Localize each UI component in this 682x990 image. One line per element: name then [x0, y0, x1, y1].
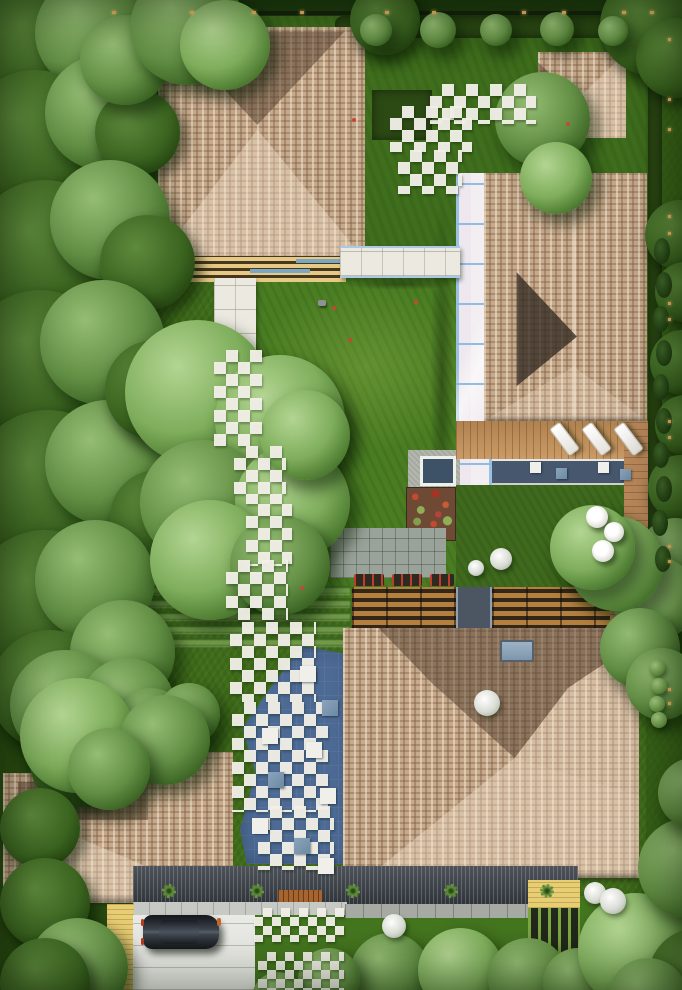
small-pool — [420, 456, 456, 486]
white-shrub — [490, 548, 512, 570]
fence-light — [650, 11, 654, 14]
conifer-hedge-tree — [653, 306, 669, 332]
car-headlight — [217, 918, 221, 926]
car — [141, 912, 221, 952]
flower-planter — [430, 574, 454, 586]
fence-light — [190, 11, 194, 14]
terrace-tile — [322, 700, 338, 716]
fence-light — [622, 11, 626, 14]
conifer-hedge-tree — [656, 272, 672, 298]
paver-checkerboard — [230, 622, 316, 702]
patio-umbrella — [604, 522, 624, 542]
conifer-hedge-tree — [652, 510, 668, 536]
white-shrub — [382, 914, 406, 938]
fence-light — [668, 688, 671, 691]
fence-light — [432, 11, 436, 14]
paver-checkerboard — [246, 504, 292, 566]
house-b-ridge — [574, 173, 576, 421]
paver-checkerboard — [234, 446, 286, 504]
pool-pad — [598, 462, 609, 473]
flower-planter — [354, 574, 384, 586]
palm-plant — [162, 884, 176, 898]
lawn-paver-checkerboard — [258, 952, 344, 990]
conifer-hedge-tree — [654, 238, 670, 264]
terrace-tile — [268, 772, 284, 788]
terrace-tile — [320, 788, 336, 804]
tree — [540, 12, 574, 46]
conifer-hedge-tree — [656, 340, 672, 366]
pool-pad — [620, 469, 631, 480]
house-d-roof — [343, 628, 639, 878]
fence-light — [668, 420, 671, 423]
terrace-tile — [318, 858, 334, 874]
tree — [68, 728, 150, 810]
tree — [520, 142, 592, 214]
fence-light — [668, 215, 671, 218]
house-d-south-slope — [343, 628, 639, 878]
fence-light — [668, 128, 671, 131]
patio-umbrella — [592, 540, 614, 562]
tree — [0, 788, 80, 868]
car-taillight-2 — [141, 938, 144, 945]
fence-light — [668, 545, 671, 548]
terrace-tile — [306, 742, 322, 758]
trimmed-bush — [651, 712, 667, 728]
palm-plant — [444, 884, 458, 898]
conifer-hedge-tree — [653, 442, 669, 468]
red-flower — [566, 122, 570, 126]
red-flower — [332, 306, 336, 310]
terrace-tile — [300, 666, 316, 682]
conifer-hedge-tree — [653, 374, 669, 400]
terrace-tile — [262, 728, 278, 744]
fence-light — [252, 11, 256, 14]
car-roof-glass — [159, 920, 199, 944]
house-d-skylight — [500, 640, 534, 662]
house-d-east-slope — [343, 628, 639, 878]
walkway-branch-west — [340, 246, 460, 278]
robot-mower — [318, 300, 326, 306]
red-flower — [352, 118, 356, 122]
white-shrub — [474, 690, 500, 716]
terrace-tile — [252, 818, 268, 834]
fence-light — [668, 98, 671, 101]
fence-light — [385, 11, 389, 14]
entry-walk-east — [345, 904, 531, 918]
trimmed-bush — [649, 660, 665, 676]
red-flower — [414, 300, 418, 304]
pergola-blue-beam-2 — [250, 269, 310, 273]
fence-light — [668, 560, 671, 563]
house-d-north-slope — [343, 628, 639, 878]
tree — [360, 14, 392, 46]
fence-light — [562, 11, 566, 14]
paver-checkerboard — [226, 560, 288, 620]
lawn-paver-checkerboard — [254, 908, 344, 942]
fence-light — [668, 318, 671, 321]
fence-light — [668, 702, 671, 705]
red-flower — [300, 586, 304, 590]
paver-checkerboard — [390, 106, 472, 152]
car-taillight — [141, 919, 144, 926]
fence-light — [668, 38, 671, 41]
aerial-garden-render — [0, 0, 682, 990]
white-shrub — [468, 560, 484, 576]
fence-light — [668, 232, 671, 235]
tree — [480, 14, 512, 46]
trimmed-bush — [651, 678, 667, 694]
fence-light — [522, 11, 526, 14]
fence-light — [112, 11, 116, 14]
gray-stone-patio — [330, 528, 446, 578]
tree — [598, 16, 628, 46]
fence-light — [668, 302, 671, 305]
palm-plant — [540, 884, 554, 898]
conifer-hedge-tree — [655, 546, 671, 572]
pool-pad — [530, 462, 541, 473]
paver-checkerboard — [398, 150, 462, 194]
white-shrub — [600, 888, 626, 914]
flower-planter — [392, 574, 422, 586]
conifer-hedge-tree — [656, 476, 672, 502]
trimmed-bush — [649, 696, 665, 712]
patio-umbrella — [586, 506, 608, 528]
yellow-deck-north — [528, 880, 580, 908]
fence-light — [668, 436, 671, 439]
terrace-tile — [294, 838, 310, 854]
palm-plant — [250, 884, 264, 898]
tree — [420, 12, 456, 48]
pergola-blue-beam — [296, 259, 342, 263]
red-flower — [348, 338, 352, 342]
palm-plant — [346, 884, 360, 898]
paver-checkerboard — [214, 350, 262, 446]
fence-light — [300, 11, 304, 14]
pool-pad — [556, 468, 567, 479]
